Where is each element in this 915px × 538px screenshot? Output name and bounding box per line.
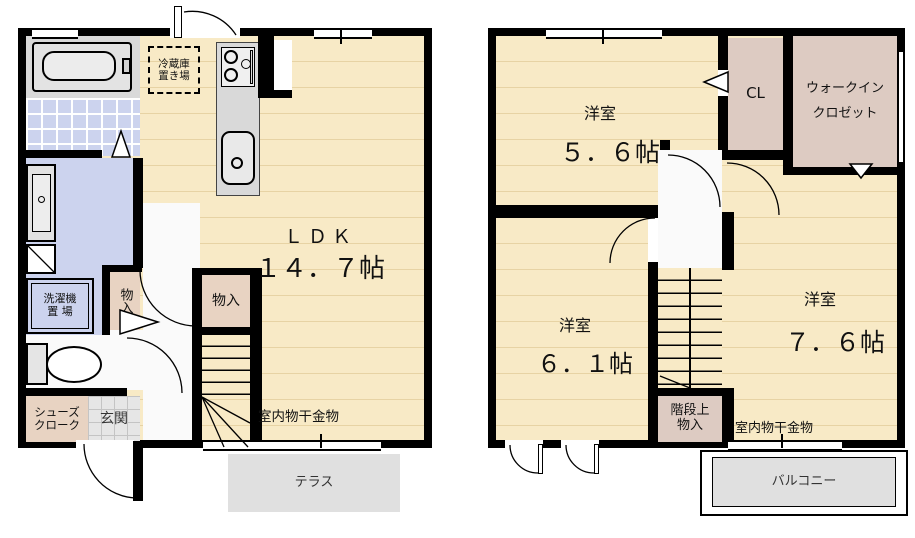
room-76-label: 洋室 <box>790 290 850 310</box>
stairs-1f <box>202 335 250 395</box>
wall <box>718 150 783 160</box>
floorplan-canvas: 洗濯機 置 場 物入 シューズ クローク 玄関 <box>0 0 915 538</box>
terrace: テラス <box>228 454 400 512</box>
burner <box>224 50 238 64</box>
stairs-2f <box>658 268 722 390</box>
window-tick <box>602 30 604 44</box>
cabinet <box>26 244 56 274</box>
burner <box>224 68 238 82</box>
stair-storage-2f-line2: 物入 <box>677 418 703 433</box>
wall <box>258 36 274 97</box>
wall <box>192 268 202 448</box>
wic-label-line2: クロゼット <box>812 106 877 121</box>
wall <box>102 265 110 337</box>
fridge-label-line1: 冷蔵庫 <box>158 58 190 70</box>
wall <box>722 212 734 270</box>
hall-storage-label: 物入 <box>116 288 135 314</box>
cl-label: CL <box>746 85 765 102</box>
wall <box>648 388 722 396</box>
casement-leaf <box>538 444 543 474</box>
room-56-size: ５．６帖 <box>540 138 680 168</box>
stair-storage-1f-label: 物入 <box>212 293 240 309</box>
stove-panel <box>250 50 253 84</box>
door-leaf <box>174 6 182 38</box>
bathroom-tile-floor <box>26 98 140 156</box>
hallway-2f <box>658 150 722 270</box>
shoe-closet-label-line2: クローク <box>34 418 80 432</box>
room-56-label: 洋室 <box>570 104 630 124</box>
toilet-tank <box>26 343 48 385</box>
laundry-label-line2: 置 場 <box>47 305 73 318</box>
balcony-floor: バルコニー <box>712 457 896 507</box>
bath-faucet <box>122 58 131 74</box>
stair-storage-2f-line1: 階段上 <box>670 403 709 418</box>
window <box>546 28 662 39</box>
entrance: 玄関 <box>88 396 140 442</box>
counter-recess <box>274 40 292 90</box>
wall <box>258 90 292 98</box>
toilet-bowl <box>46 346 102 383</box>
washing-machine-area: 洗濯機 置 場 <box>26 278 94 334</box>
wall <box>496 205 670 218</box>
kitchen-counter <box>216 42 260 196</box>
window-tick <box>320 434 322 448</box>
wall <box>718 36 728 160</box>
hall-storage: 物入 <box>110 272 140 330</box>
ldk-label: ＬＤＫ <box>240 226 400 250</box>
entrance-opening <box>76 440 134 449</box>
washbasin <box>26 164 56 242</box>
window <box>203 440 381 451</box>
fridge-label-line2: 置き場 <box>158 70 190 82</box>
wall <box>722 388 734 448</box>
wall <box>26 388 127 396</box>
kitchen-sink <box>221 131 255 185</box>
room-61-size: ６．１帖 <box>520 350 650 380</box>
second-floor-plan: CL ウォークイン クロゼット 階段上 物入 洋室 ５．６帖 洋室 ６．１帖 洋… <box>488 28 905 448</box>
stairs-rail <box>689 268 691 390</box>
stair-storage-2f: 階段上 物入 <box>658 396 722 442</box>
ldk-size: １４．７帖 <box>225 254 415 286</box>
window-tick <box>340 30 342 44</box>
shoe-closet-label-line1: シューズ <box>34 405 79 419</box>
porch-wall <box>133 441 143 501</box>
window-tick <box>781 434 783 448</box>
wall <box>783 36 793 165</box>
balcony-label: バルコニー <box>772 475 837 490</box>
drying-hardware-label-1f: 室内物干金物 <box>258 410 339 426</box>
window <box>32 28 78 39</box>
closet-cl: CL <box>728 38 783 150</box>
room-door-opening <box>648 218 658 262</box>
window <box>314 28 372 39</box>
casement-leaf <box>594 444 599 474</box>
refrigerator-space: 冷蔵庫 置き場 <box>148 46 200 94</box>
bathtub <box>32 42 132 92</box>
terrace-label: テラス <box>295 476 334 491</box>
laundry-label-line1: 洗濯機 <box>44 292 77 305</box>
wall <box>133 158 143 268</box>
shoe-closet: シューズ クローク <box>26 396 88 442</box>
closet-door-opening <box>718 70 728 96</box>
wic-label-line1: ウォークイン <box>806 81 884 96</box>
drying-hardware-label-2f: 室内物干金物 <box>735 422 813 437</box>
bathtub-inner <box>42 51 116 81</box>
entrance-label: 玄関 <box>100 411 128 427</box>
room-61-label: 洋室 <box>545 316 605 336</box>
first-floor-plan: 洗濯機 置 場 物入 シューズ クローク 玄関 <box>18 28 432 448</box>
stove <box>221 47 255 87</box>
room-76-size: ７．６帖 <box>765 328 905 358</box>
washing-machine-area-inner: 洗濯機 置 場 <box>31 283 89 329</box>
window <box>897 52 905 162</box>
wall <box>202 327 250 335</box>
wall <box>26 150 102 158</box>
washbasin-bowl <box>32 174 51 232</box>
balcony: バルコニー <box>700 450 908 516</box>
walk-in-closet: ウォークイン クロゼット <box>793 36 897 167</box>
sink-drain <box>231 157 243 169</box>
washbasin-drain <box>38 196 45 203</box>
